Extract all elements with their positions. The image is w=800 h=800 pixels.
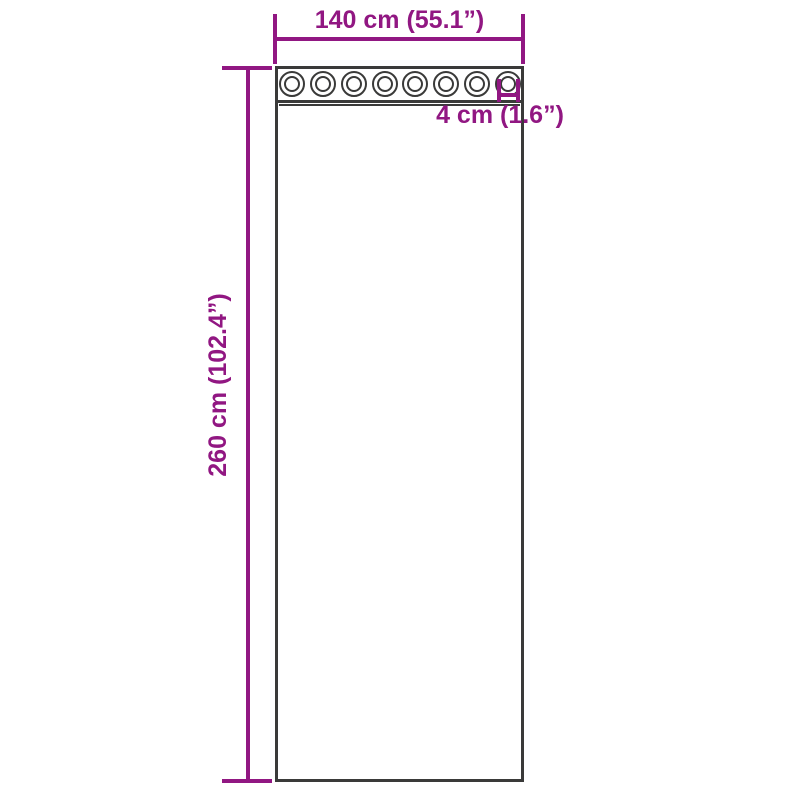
grommet-icon xyxy=(372,71,398,97)
grommet-hole xyxy=(469,76,485,92)
height-dimension-label: 260 cm (102.4”) xyxy=(204,293,232,476)
grommet-icon xyxy=(279,71,305,97)
grommet-bracket-left-tick xyxy=(497,79,501,102)
width-dimension-line xyxy=(275,37,524,41)
height-dimension-top-tick xyxy=(222,66,272,70)
grommet-icon xyxy=(341,71,367,97)
grommet-icon xyxy=(433,71,459,97)
grommet-icon xyxy=(310,71,336,97)
grommet-hole xyxy=(377,76,393,92)
grommet-icon xyxy=(464,71,490,97)
curtain-dimension-diagram: 140 cm (55.1”) 260 cm (102.4”) 4 cm (1.6… xyxy=(0,0,800,800)
grommet-hole xyxy=(407,76,423,92)
grommet-band xyxy=(275,66,524,103)
height-dimension-line xyxy=(246,66,250,783)
grommet-icon xyxy=(402,71,428,97)
grommet-hole xyxy=(500,76,516,92)
grommet-hole xyxy=(284,76,300,92)
grommet-diameter-label: 4 cm (1.6”) xyxy=(436,101,564,129)
curtain-panel xyxy=(275,66,524,782)
grommet-hole xyxy=(438,76,454,92)
grommet-hole xyxy=(346,76,362,92)
grommet-bracket-bar xyxy=(497,93,520,97)
grommet-bracket-right-tick xyxy=(516,79,520,102)
height-dimension-bottom-tick xyxy=(222,779,272,783)
width-dimension-label: 140 cm (55.1”) xyxy=(275,6,524,34)
grommet-hole xyxy=(315,76,331,92)
